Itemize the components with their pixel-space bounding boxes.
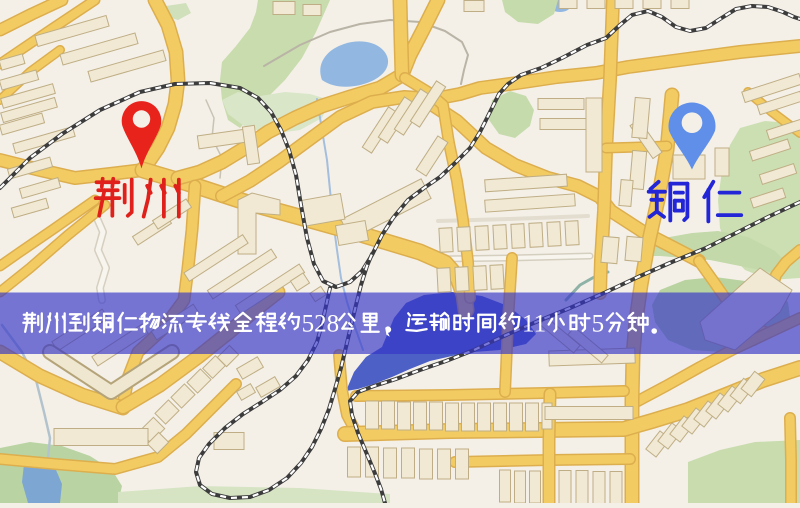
svg-text:5: 5 [592, 310, 605, 337]
svg-text:528: 528 [302, 310, 340, 337]
svg-text:11: 11 [522, 310, 546, 337]
